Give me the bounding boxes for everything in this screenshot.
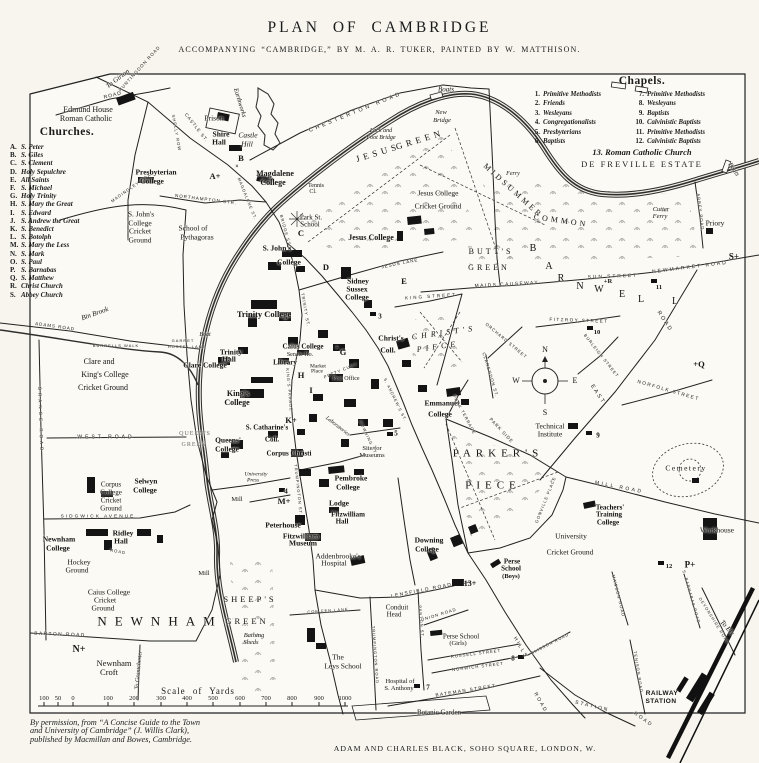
scale-tick: 600: [235, 695, 245, 702]
attribution: By permission, from “A Concise Guide to …: [30, 719, 200, 744]
scale-tick: 700: [261, 695, 271, 702]
scale-tick: 1000: [339, 695, 352, 702]
scale-tick: 500: [208, 695, 218, 702]
scale-ticks: 1005001002003004005006007008009001000: [0, 0, 759, 763]
scale-tick: 200: [129, 695, 139, 702]
page: PLAN OF CAMBRIDGE ACCOMPANYING “CAMBRIDG…: [0, 0, 759, 763]
scale-tick: 300: [156, 695, 166, 702]
scale-tick: 50: [55, 695, 62, 702]
scale-tick: 900: [314, 695, 324, 702]
scale-tick: 800: [287, 695, 297, 702]
scale-tick: 100: [39, 695, 49, 702]
attribution-line: published by Macmillan and Bowes, Cambri…: [30, 736, 200, 744]
scale-tick: 0: [71, 695, 74, 702]
scale-tick: 100: [103, 695, 113, 702]
scale-tick: 400: [182, 695, 192, 702]
publisher-line: ADAM AND CHARLES BLACK, SOHO SQUARE, LON…: [300, 744, 630, 753]
